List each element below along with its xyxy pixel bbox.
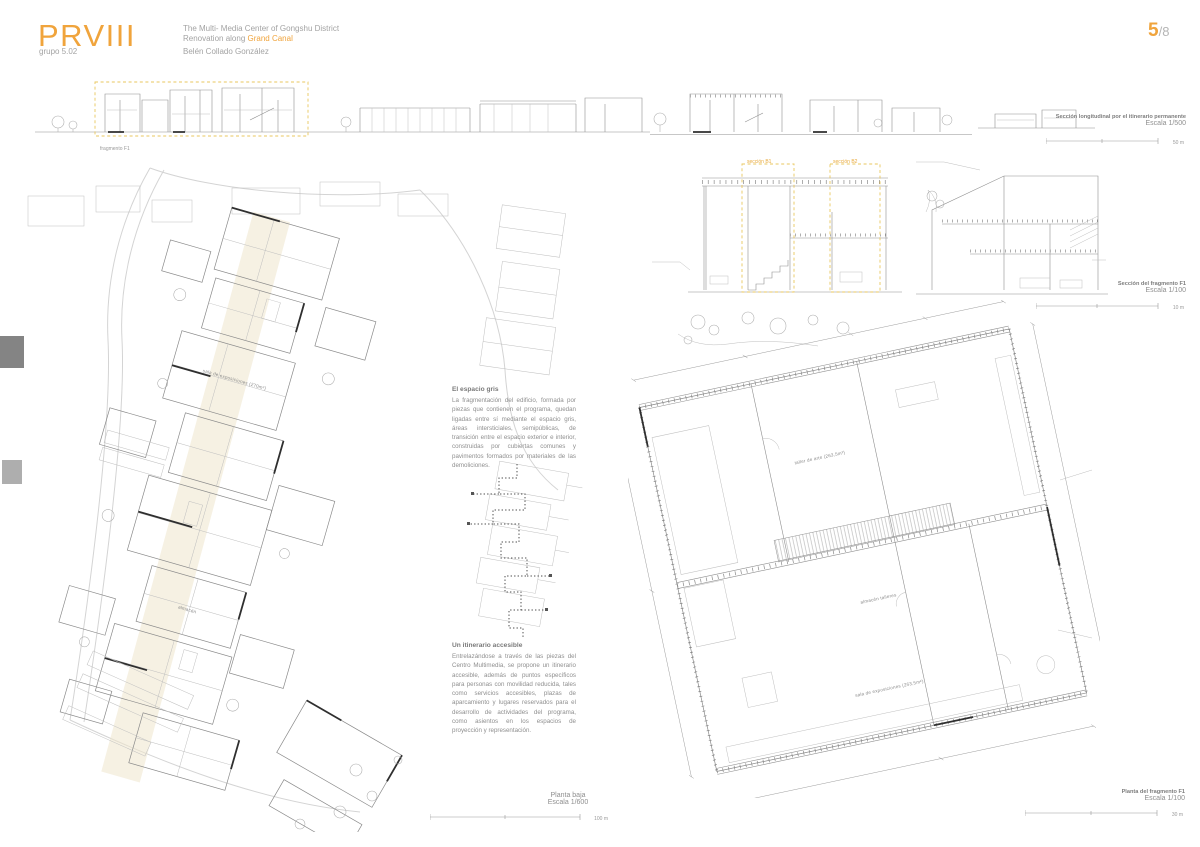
page-total: /8 bbox=[1159, 24, 1170, 39]
long-section-caption: Sección longitudinal por el itinerario p… bbox=[1056, 114, 1186, 127]
page-current: 5 bbox=[1148, 20, 1159, 41]
fragment-section-right bbox=[916, 162, 1108, 294]
fragment-plan-vegetation bbox=[678, 312, 849, 346]
page-number: 5/8 bbox=[1148, 20, 1169, 42]
long-section-drawing bbox=[10, 70, 1190, 160]
itinerary-outlines bbox=[469, 460, 585, 629]
sheet-title: The Multi- Media Center of Gongshu Distr… bbox=[183, 24, 339, 44]
plan-label-right-1: taller de arte (263,5m²) bbox=[794, 450, 846, 466]
ground-plan-bar-label: 100 m bbox=[594, 816, 608, 822]
fragment-plan-bar-label: 30 m bbox=[1172, 812, 1183, 818]
fragment-section-bar-label: 10 m bbox=[1173, 305, 1184, 311]
title-line-2: Renovation along Grand Canal bbox=[183, 34, 339, 44]
fragment-tag: fragmento F1 bbox=[100, 146, 130, 152]
fragment-plan-caption: Planta del fragmento F1 Escala 1/100 bbox=[1122, 789, 1185, 802]
presentation-sheet: PRVIII The Multi- Media Center of Gongsh… bbox=[0, 0, 1200, 847]
long-section-scalebar: 50 m bbox=[1046, 136, 1186, 150]
fragment-plan-linework: taller de arte (263,5m²) almacén tallere… bbox=[628, 300, 1100, 798]
author-name: Belén Collado González bbox=[183, 47, 269, 56]
fragment-section-drawing bbox=[640, 152, 1110, 304]
itinerary-route bbox=[467, 464, 552, 638]
gray-space-heading: El espacio gris bbox=[452, 386, 576, 393]
text-block-accessible-route: Un itinerario accesible Entrelazándose a… bbox=[452, 642, 576, 736]
plan-label-right-2: almacén talleres bbox=[860, 592, 897, 605]
ground-plan-scalebar: 100 m bbox=[430, 812, 610, 826]
title-accent: Grand Canal bbox=[248, 34, 293, 43]
accessible-route-body: Entrelazándose a través de las piezas de… bbox=[452, 652, 576, 736]
ground-plan-title: Planta baja bbox=[508, 792, 628, 799]
section-b1-tag: sección B1 bbox=[747, 159, 771, 165]
fragment-plan-scale: Escala 1/100 bbox=[1122, 795, 1185, 802]
ground-plan-caption: Planta baja Escala 1/600 bbox=[508, 792, 628, 806]
section-b2-tag: sección B2 bbox=[833, 159, 857, 165]
long-section-linework bbox=[35, 82, 1095, 136]
fragment-plan-leaders bbox=[1058, 470, 1092, 638]
long-section-bar-label: 50 m bbox=[1173, 140, 1184, 146]
fragment-section-left bbox=[652, 164, 902, 292]
ground-plan-building-cluster: sala de exposiciones (270m²) almacén bbox=[13, 189, 407, 814]
ground-plan-south-blocks bbox=[252, 700, 402, 832]
group-label: grupo 5.02 bbox=[39, 47, 77, 56]
title-line-1: The Multi- Media Center of Gongshu Distr… bbox=[183, 24, 339, 34]
ground-plan-trees-south bbox=[295, 756, 402, 829]
itinerary-diagram bbox=[455, 458, 585, 640]
context-dark-block bbox=[0, 336, 24, 368]
accessible-route-heading: Un itinerario accesible bbox=[452, 642, 576, 649]
long-section-scale: Escala 1/500 bbox=[1056, 120, 1186, 127]
ground-plan-scale: Escala 1/600 bbox=[508, 799, 628, 806]
fragment-section-caption: Sección del fragmento F1 Escala 1/100 bbox=[1118, 281, 1186, 294]
fragment-plan-scalebar: 30 m bbox=[1025, 808, 1185, 822]
fragment-plan-drawing: taller de arte (263,5m²) almacén tallere… bbox=[628, 300, 1100, 798]
fragment-section-scale: Escala 1/100 bbox=[1118, 287, 1186, 294]
plan-label-right-3: sala de exposiciones (263,5m²) bbox=[855, 679, 925, 698]
